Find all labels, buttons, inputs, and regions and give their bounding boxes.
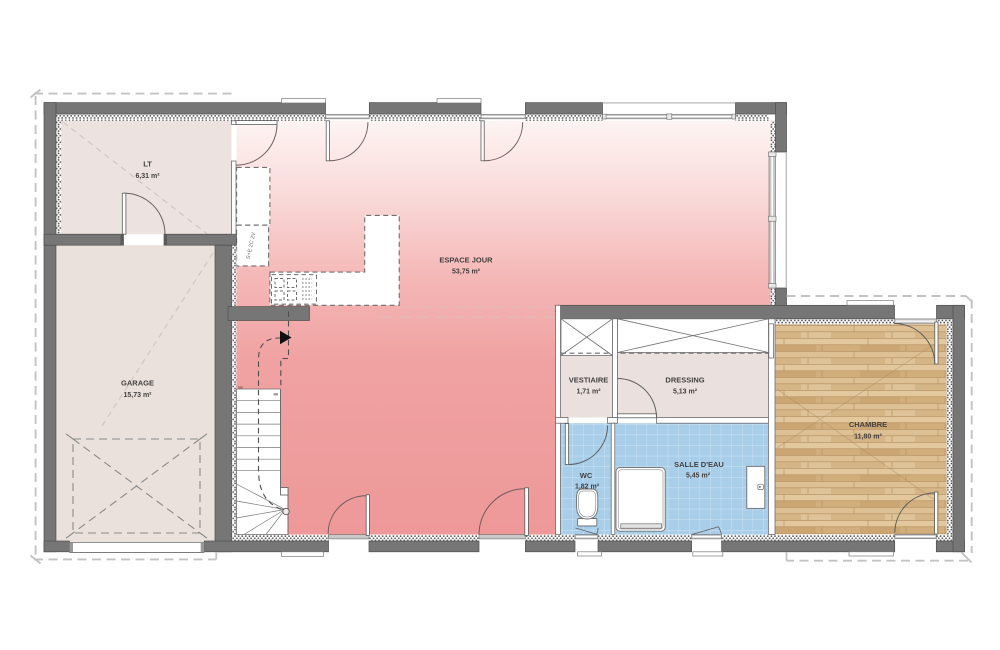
svg-text:LT: LT — [143, 160, 152, 169]
svg-text:GARAGE: GARAGE — [121, 379, 154, 388]
svg-text:CHAMBRE: CHAMBRE — [849, 420, 887, 429]
svg-text:5,45 m²: 5,45 m² — [686, 473, 711, 480]
svg-text:WC: WC — [580, 471, 593, 480]
svg-text:6,31 m²: 6,31 m² — [135, 173, 160, 180]
svg-text:DRESSING: DRESSING — [665, 376, 704, 385]
svg-text:11,80 m²: 11,80 m² — [854, 434, 882, 441]
svg-text:53,75 m²: 53,75 m² — [452, 269, 481, 276]
svg-text:ESPACE JOUR: ESPACE JOUR — [439, 256, 493, 265]
svg-text:1,71 m²: 1,71 m² — [576, 389, 601, 396]
svg-text:SALLE D'EAU: SALLE D'EAU — [674, 460, 724, 469]
svg-text:15,73 m²: 15,73 m² — [123, 392, 152, 399]
svg-text:VESTIAIRE: VESTIAIRE — [569, 376, 609, 385]
svg-text:5,13 m²: 5,13 m² — [673, 389, 698, 396]
svg-text:1,82 m²: 1,82 m² — [575, 484, 600, 491]
